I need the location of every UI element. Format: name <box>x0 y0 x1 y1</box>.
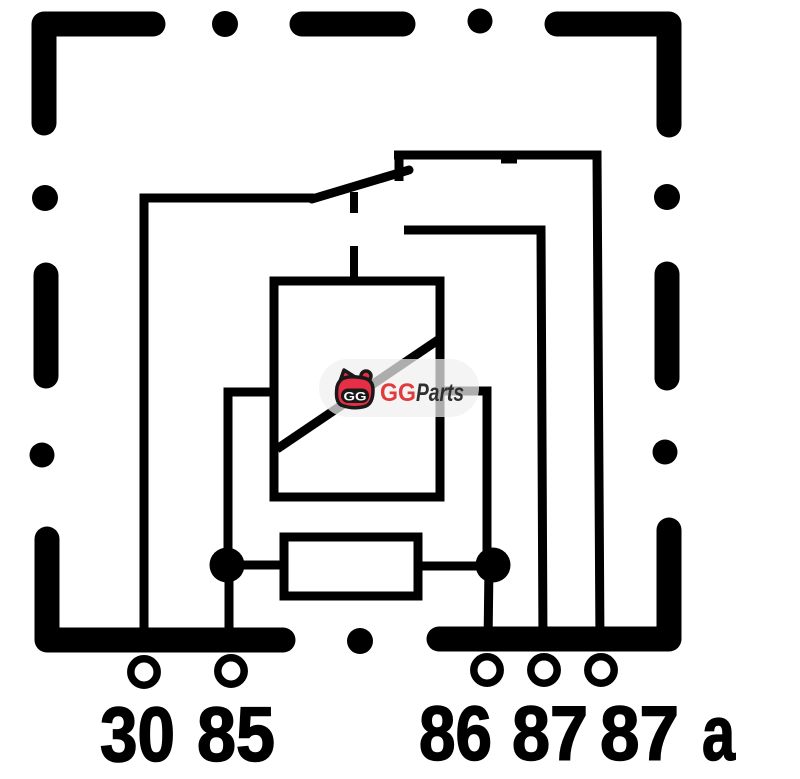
svg-text:86: 86 <box>419 691 492 777</box>
svg-text:85: 85 <box>197 692 275 778</box>
svg-text:a: a <box>702 691 736 777</box>
svg-text:87: 87 <box>512 691 588 777</box>
svg-text:GG: GG <box>380 379 416 407</box>
svg-text:87: 87 <box>600 691 679 777</box>
svg-text:GG: GG <box>344 390 367 404</box>
svg-text:30: 30 <box>100 692 175 778</box>
svg-text:Parts: Parts <box>416 379 464 407</box>
